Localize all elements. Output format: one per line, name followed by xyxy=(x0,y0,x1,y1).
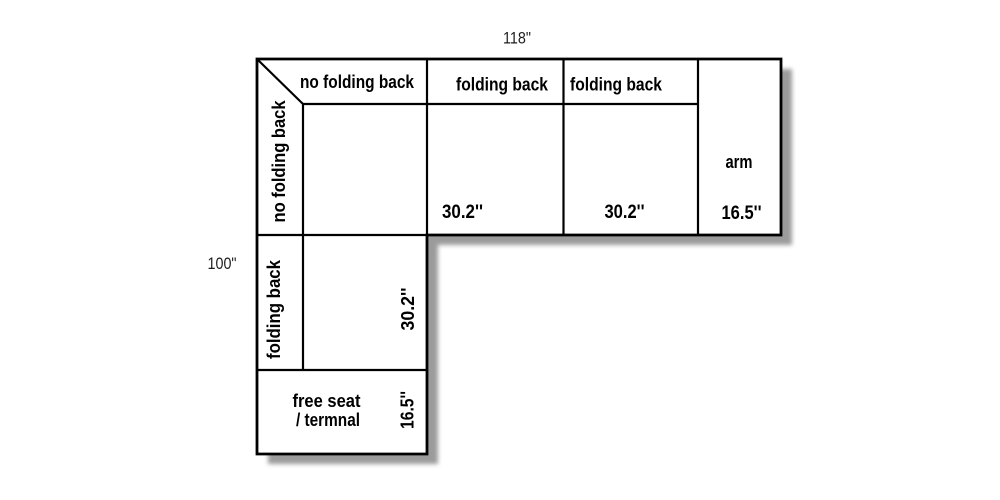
svg-text:/ termnal: / termnal xyxy=(296,410,360,430)
svg-text:no folding back: no folding back xyxy=(269,100,289,223)
svg-text:100": 100" xyxy=(208,254,237,273)
svg-text:30.2'': 30.2'' xyxy=(605,202,645,223)
svg-text:no folding back: no folding back xyxy=(300,72,415,92)
svg-text:118": 118" xyxy=(503,29,531,48)
svg-text:16.5'': 16.5'' xyxy=(398,391,418,429)
svg-text:arm: arm xyxy=(726,152,753,172)
svg-text:30.2'': 30.2'' xyxy=(442,202,483,223)
svg-text:folding back: folding back xyxy=(570,75,663,95)
svg-text:folding back: folding back xyxy=(456,75,549,95)
svg-text:30.2'': 30.2'' xyxy=(398,288,418,331)
svg-text:folding back: folding back xyxy=(264,259,284,359)
svg-text:16.5'': 16.5'' xyxy=(722,203,762,224)
svg-text:free seat: free seat xyxy=(293,391,361,411)
